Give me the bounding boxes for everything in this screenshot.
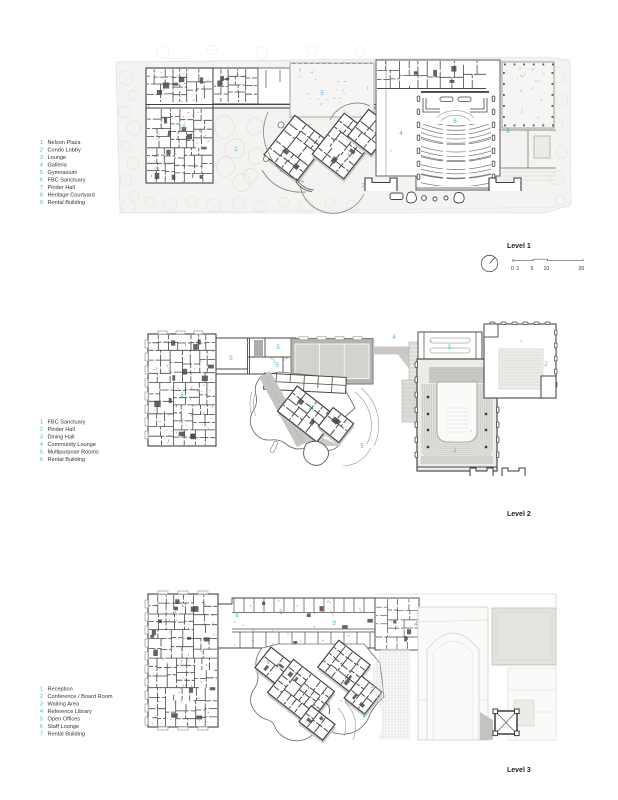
- svg-text:10: 10: [544, 266, 550, 272]
- svg-text:Pinder Hall: Pinder Hall: [48, 185, 75, 191]
- svg-text:Reference Library: Reference Library: [48, 709, 93, 715]
- svg-text:7: 7: [40, 185, 43, 191]
- svg-text:4: 4: [40, 163, 43, 169]
- svg-text:9: 9: [40, 200, 43, 206]
- svg-text:FBC Sanctuary: FBC Sanctuary: [48, 420, 86, 426]
- svg-text:Rental Building: Rental Building: [48, 732, 86, 738]
- svg-text:2: 2: [40, 694, 43, 700]
- svg-text:2: 2: [40, 148, 43, 154]
- svg-text:Dining Hall: Dining Hall: [48, 435, 75, 441]
- svg-text:2: 2: [40, 427, 43, 433]
- svg-text:Level 2: Level 2: [507, 511, 531, 518]
- svg-text:1: 1: [40, 420, 43, 426]
- svg-text:FBC Sanctuary: FBC Sanctuary: [48, 178, 86, 184]
- svg-text:0: 0: [511, 266, 514, 272]
- svg-text:Nelson Plaza: Nelson Plaza: [48, 140, 82, 146]
- svg-text:Waiting Area: Waiting Area: [48, 702, 80, 708]
- svg-text:8: 8: [40, 193, 43, 199]
- svg-text:Level 3: Level 3: [507, 767, 531, 774]
- svg-text:5: 5: [40, 170, 43, 176]
- svg-text:6: 6: [40, 457, 43, 463]
- svg-text:7: 7: [40, 732, 43, 738]
- svg-text:6: 6: [40, 178, 43, 184]
- svg-text:1: 1: [40, 140, 43, 146]
- svg-text:5: 5: [40, 717, 43, 723]
- svg-text:Lounge: Lounge: [48, 155, 67, 161]
- svg-text:1: 1: [40, 687, 43, 693]
- svg-text:Rental Building: Rental Building: [48, 200, 86, 206]
- svg-text:3: 3: [40, 155, 43, 161]
- svg-text:3: 3: [40, 702, 43, 708]
- svg-text:Heritage Courtyard: Heritage Courtyard: [48, 193, 95, 199]
- svg-text:Rental Building: Rental Building: [48, 457, 86, 463]
- svg-text:5: 5: [40, 450, 43, 456]
- svg-text:Staff Lounge: Staff Lounge: [48, 724, 80, 730]
- svg-text:Condo Lobby: Condo Lobby: [48, 148, 81, 154]
- svg-text:Community Lounge: Community Lounge: [48, 442, 97, 448]
- svg-text:4: 4: [40, 709, 43, 715]
- svg-text:3: 3: [40, 435, 43, 441]
- svg-text:Pinder Hall: Pinder Hall: [48, 427, 75, 433]
- svg-text:Reception: Reception: [48, 687, 73, 693]
- svg-text:Level 1: Level 1: [507, 243, 531, 250]
- svg-text:Conference / Board Room: Conference / Board Room: [48, 694, 113, 700]
- svg-text:1: 1: [517, 266, 520, 272]
- svg-text:Galleria: Galleria: [48, 163, 68, 169]
- svg-text:Gymnasium: Gymnasium: [48, 170, 78, 176]
- svg-text:Multipurpose Rooms: Multipurpose Rooms: [48, 450, 100, 456]
- svg-text:5: 5: [531, 266, 534, 272]
- svg-text:20: 20: [579, 266, 585, 272]
- svg-text:4: 4: [40, 442, 43, 448]
- svg-text:Open Offices: Open Offices: [48, 717, 81, 723]
- svg-text:6: 6: [40, 724, 43, 730]
